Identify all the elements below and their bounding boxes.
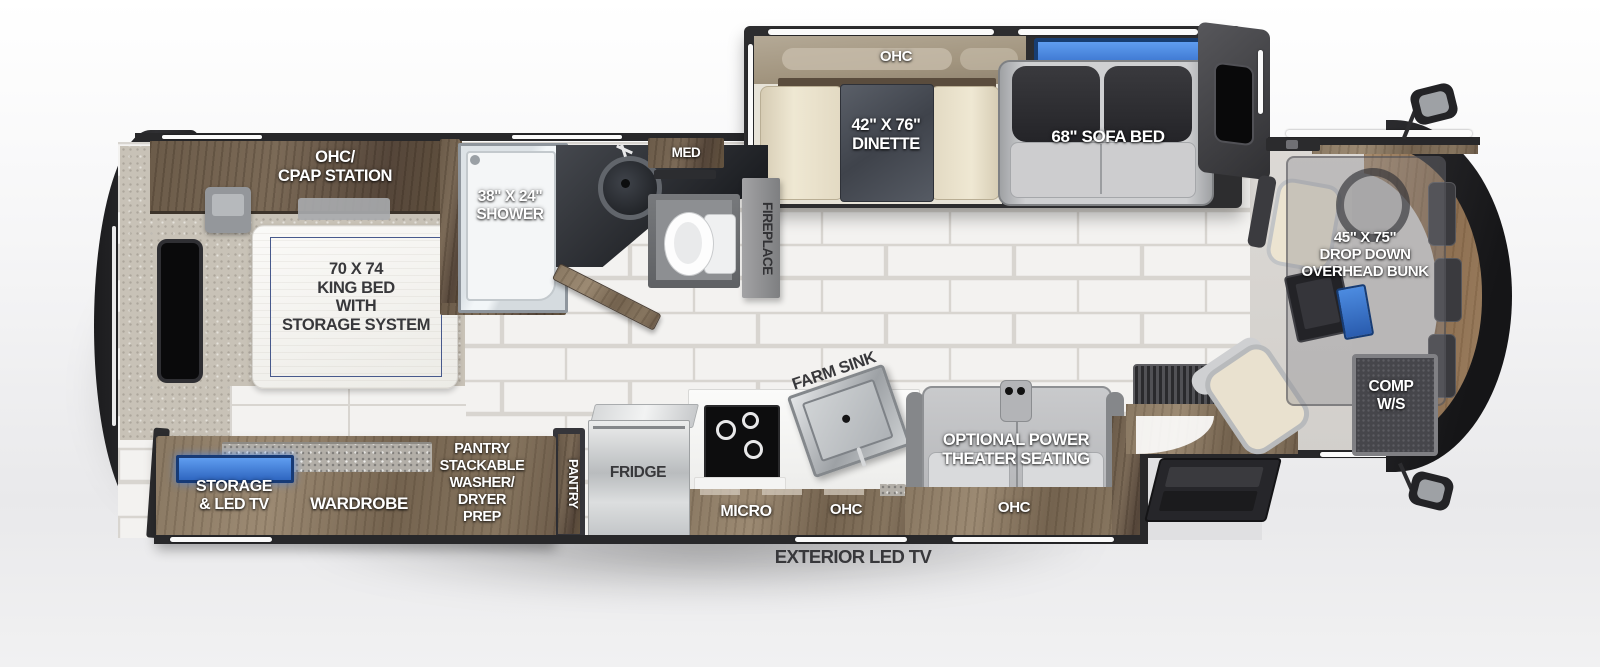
sink-drain (621, 179, 630, 188)
step (1159, 491, 1258, 511)
window (952, 537, 1114, 542)
cpap-machine-top (212, 194, 244, 216)
shower-pan (466, 151, 556, 301)
cabinet-trim (762, 489, 802, 495)
dinette-label: 42" X 76" DINETTE (828, 116, 944, 153)
fridge-label: FRIDGE (588, 464, 688, 482)
shower-head-icon (470, 155, 480, 165)
latch-knob (1286, 140, 1298, 149)
burner-icon (716, 420, 736, 440)
window (795, 537, 907, 542)
entry-wall (1140, 450, 1148, 544)
cupholder-icon (1005, 387, 1013, 395)
side-mirror-icon (1408, 81, 1459, 127)
window (170, 537, 272, 542)
mirror-glass (1416, 478, 1446, 504)
burner-icon (744, 440, 763, 459)
pantry-stack-label: PANTRY STACKABLE WASHER/ DRYER PREP (432, 441, 532, 527)
sofa-seam (1100, 144, 1102, 194)
entry-steps (1144, 458, 1282, 522)
ohc-cpap-label: OHC/ CPAP STATION (240, 148, 430, 185)
storage-tv-label: STORAGE & LED TV (166, 478, 302, 514)
fireplace-label: FIREPLACE (747, 184, 775, 292)
toilet-seat (674, 222, 702, 264)
slideout-window (1018, 29, 1198, 35)
toilet-icon (664, 212, 714, 276)
pantry-label: PANTRY (558, 438, 580, 530)
endcap-window (1214, 62, 1254, 147)
king-bed-label: 70 X 74 KING BED WITH STORAGE SYSTEM (258, 260, 454, 335)
cpap-machine (205, 187, 251, 233)
shelf-tray (298, 198, 390, 220)
med-label: MED (648, 145, 724, 160)
slideout-window (768, 29, 994, 35)
windshield (1286, 130, 1472, 137)
shower-label: 38" X 24" SHOWER (456, 188, 564, 223)
theater-ohc-label: OHC (986, 500, 1042, 517)
burner-icon (742, 412, 759, 429)
window (162, 135, 262, 139)
mirror-glass (1418, 90, 1450, 118)
ohc-label: OHC (846, 49, 946, 66)
rear-accent-strip (112, 226, 116, 426)
shower-frame (440, 139, 460, 313)
micro-label: MICRO (706, 503, 786, 521)
med-shelf (654, 170, 716, 179)
kitchen-ohc-label: OHC (820, 502, 872, 519)
slide-latch (1266, 138, 1320, 151)
bedroom-tv (157, 239, 203, 383)
sofa-seat (1010, 142, 1196, 198)
laptop-screen (1295, 277, 1340, 329)
bedroom-tile-patch (230, 386, 466, 440)
cupholder-console (1000, 380, 1032, 422)
bunk-label: 45" X 75" DROP DOWN OVERHEAD BUNK (1288, 230, 1442, 281)
endcap-window-strip (1258, 50, 1263, 114)
fridge-handle (593, 426, 685, 429)
rv-floorplan: OHC 42" X 76" DINETTE 68" SOFA BED OHC/ … (0, 0, 1600, 667)
theater-label: OPTIONAL POWER THEATER SEATING (916, 431, 1116, 468)
sofa-bed-label: 68" SOFA BED (1028, 127, 1188, 146)
wardrobe-label: WARDROBE (298, 494, 420, 513)
cabinet-trim (700, 489, 740, 495)
cupholder-icon (1017, 387, 1025, 395)
cabinet-trim (824, 489, 864, 495)
exterior-led-tv-label: EXTERIOR LED TV (758, 547, 948, 568)
window (512, 135, 622, 139)
comp-ws-label: COMP W/S (1352, 378, 1430, 413)
step (1165, 467, 1264, 487)
